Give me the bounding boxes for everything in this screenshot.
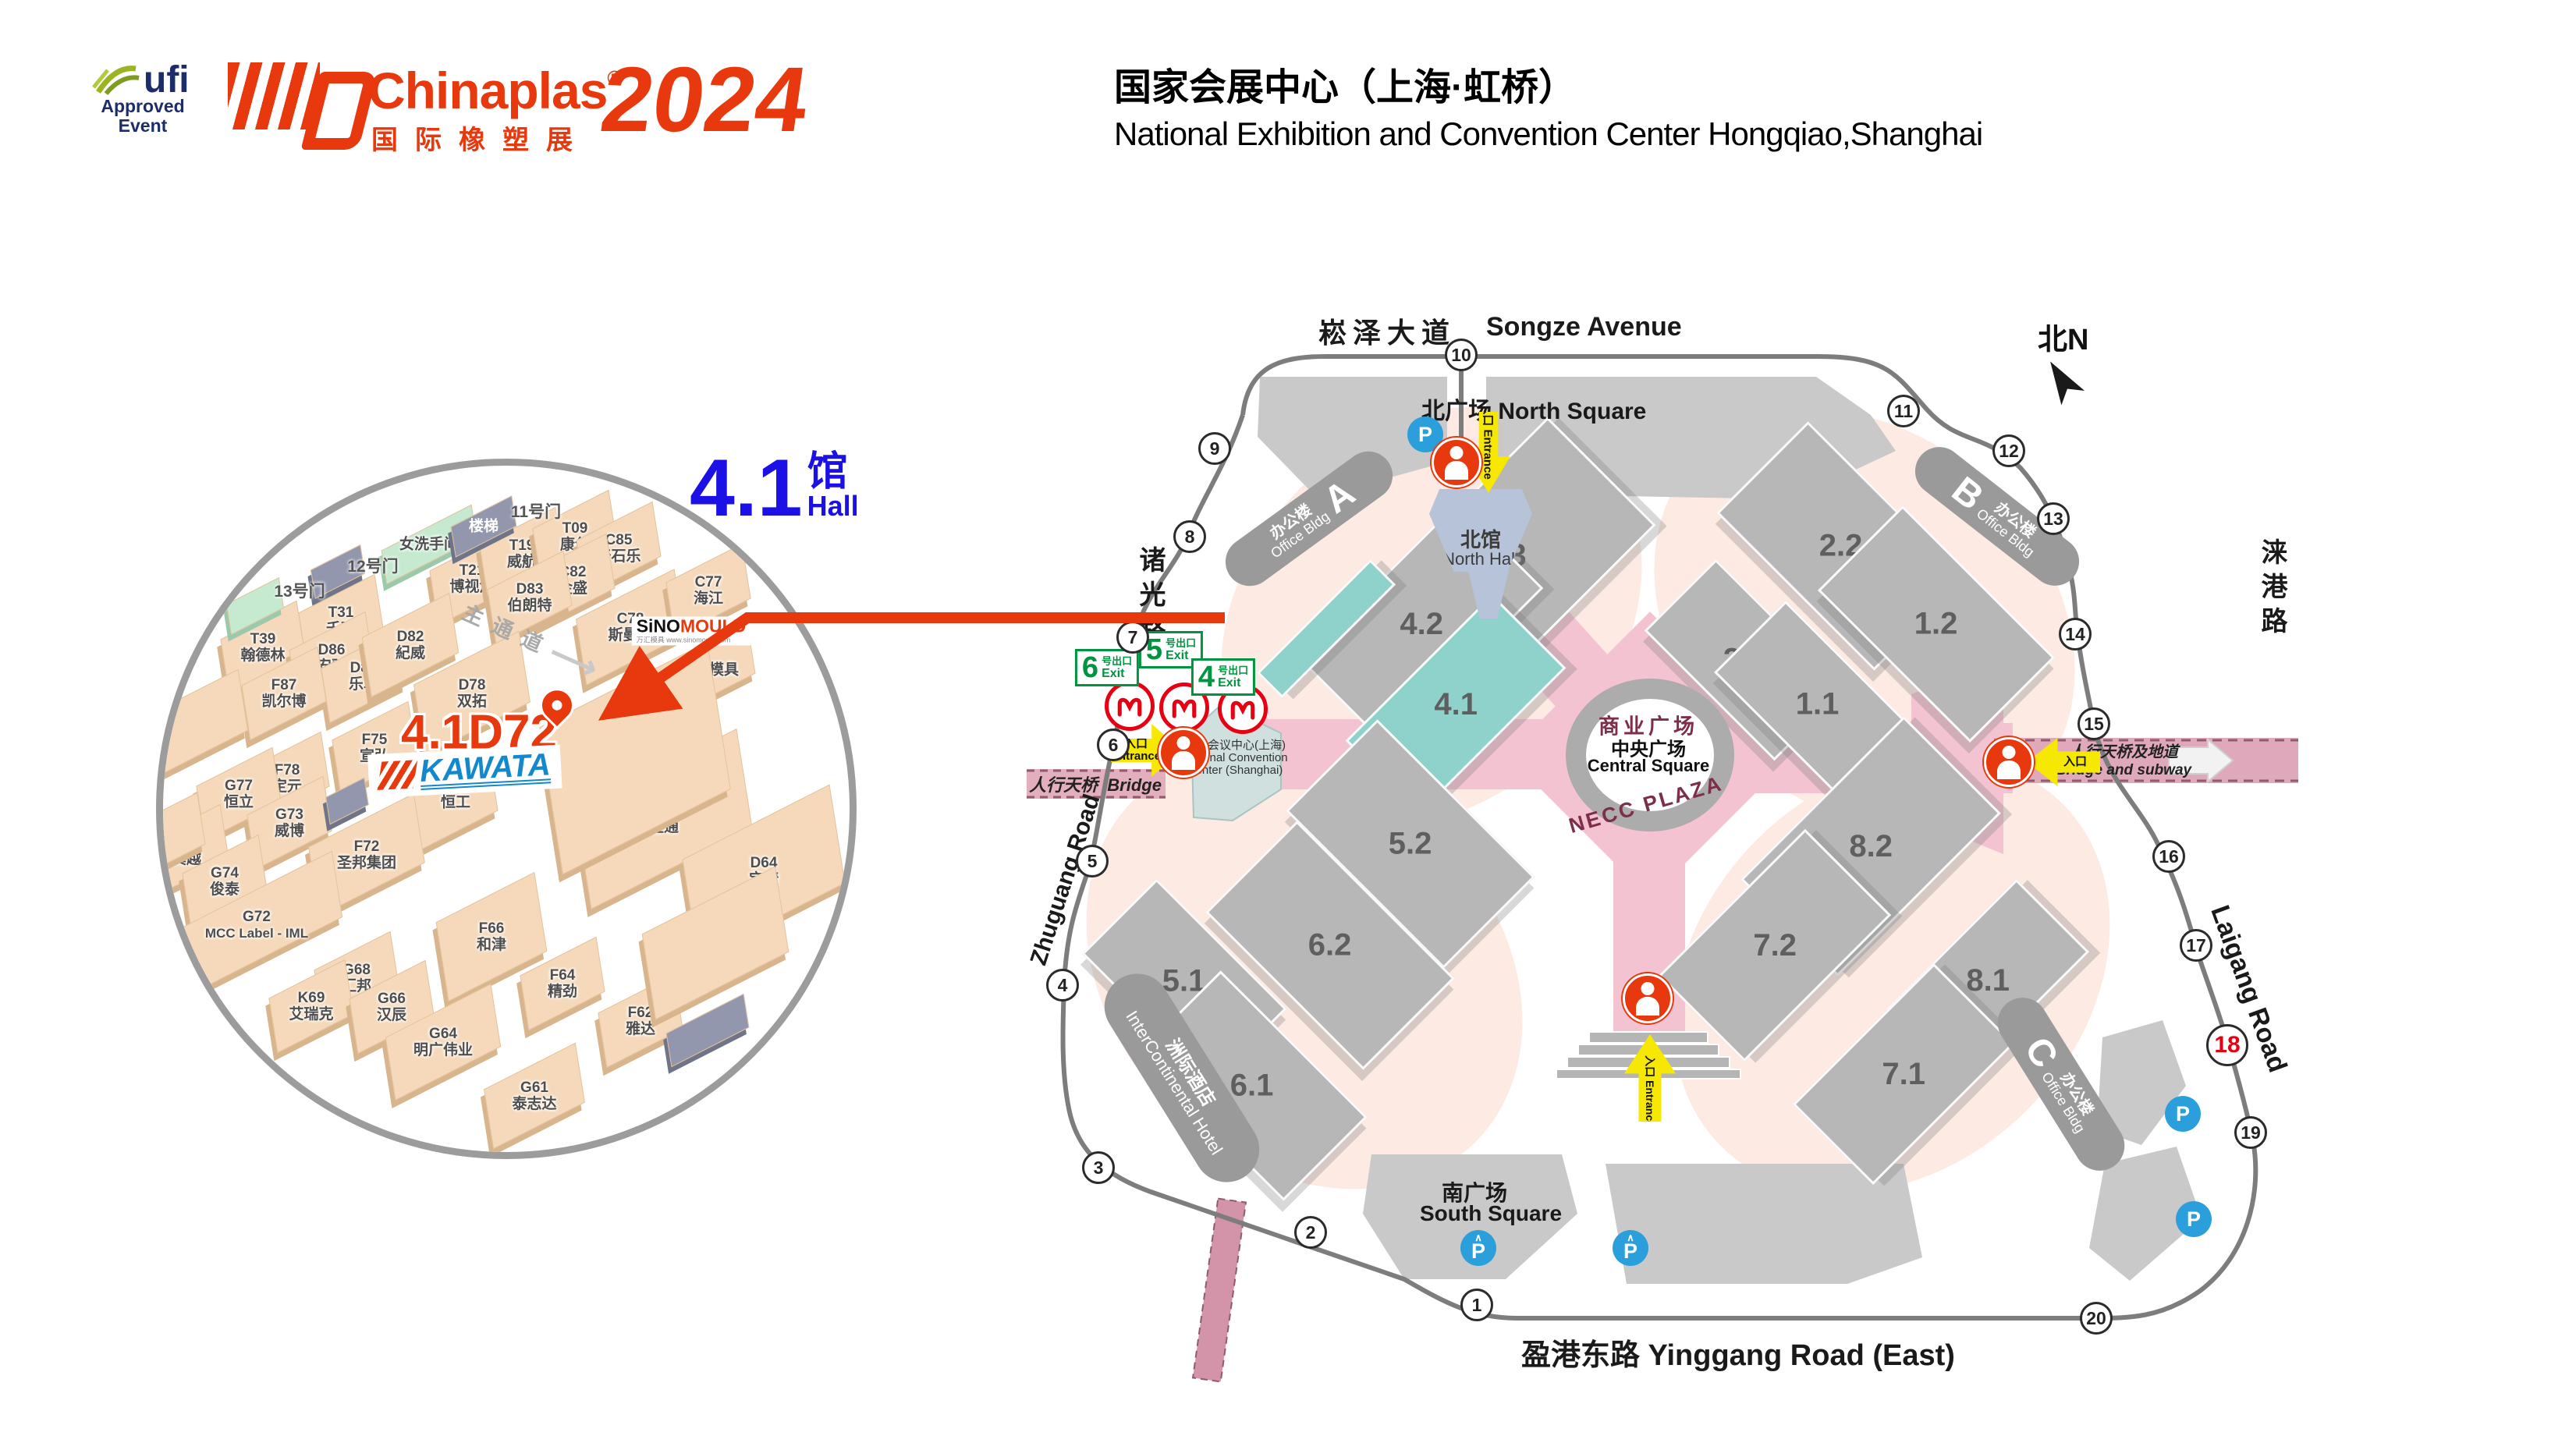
gate-label: 12号门 [347,554,398,577]
booth-label: D82紀威 [396,629,425,661]
ufi-leaf-icon: ufi [84,61,201,97]
west-bridge-label: 人行天桥 Bridge [1029,771,1162,796]
entrance-person-icon [1984,737,2034,787]
road-marker-17: 17 [2180,929,2212,962]
hall-4-1-booth-inset: 主通道⟶ SiNOMOULD 万汇模具 www.sinomould.com 4.… [156,459,857,1159]
booth-label: G77恒立 [224,778,254,810]
booth-label: G66汉辰 [377,991,406,1023]
road-marker-9: 9 [1198,432,1231,465]
booth-label: K69艾瑞克 [289,990,333,1023]
road-marker-12: 12 [1992,434,2025,467]
booth-label: F66和津 [477,920,506,953]
south-square-en: South Square [1420,1201,1562,1226]
gate-label: 11号门 [511,499,561,523]
road-marker-4: 4 [1046,969,1079,1002]
songze-avenue-en: Songze Avenue [1486,312,1682,342]
booth-label: G61泰志达 [512,1080,556,1112]
ufi-approved: Approved [84,97,201,116]
hall-number: 5.2 [1389,826,1432,861]
hall-number: 6.2 [1308,927,1352,963]
ufi-logo: ufi Approved Event [84,61,201,136]
metro-icon [1105,681,1155,731]
road-marker-2: 2 [1294,1216,1327,1249]
chinaplas-stripes-icon [228,62,320,129]
road-marker-6: 6 [1097,729,1130,761]
booth-label: G74俊泰 [210,865,240,898]
south-entrance-label: 入口 Entrance [1642,1055,1658,1127]
road-marker-10: 10 [1445,339,1478,371]
plaza-en-label: Central Square [1588,756,1710,776]
road-marker-3: 3 [1082,1151,1115,1184]
parking-icon: ∧P [1613,1230,1648,1266]
road-marker-13: 13 [2037,502,2070,535]
road-marker-15: 15 [2077,707,2110,740]
exit-sign-6: 6号出口Exit [1075,649,1139,686]
booth-label: F87凯尔博 [261,677,306,710]
booth-block: K69艾瑞克 [268,959,353,1054]
compass-north: 北N [2038,315,2088,405]
venue-title-cn: 国家会展中心（上海·虹桥） [1114,56,1576,111]
hall-number: 6.1 [1230,1068,1274,1103]
road-marker-14: 14 [2059,618,2092,651]
hall-number: 7.2 [1753,928,1797,963]
booth-label: G73威博 [275,807,304,839]
gate-label: 13号门 [274,579,325,602]
hall-number: 1.2 [1914,606,1958,641]
booth-label: F72圣邦集团 [337,838,396,871]
hall-number: 4.2 [1400,607,1443,642]
sinomould-logo: SiNOMOULD 万汇模具 www.sinomould.com [632,617,751,646]
svg-text:ufi: ufi [144,61,190,97]
parking-icon: P [2176,1201,2212,1237]
hall-4-1-callout: 4.1 馆 Hall [690,451,859,526]
east-entrance-label: 入口 [2063,756,2087,768]
ufi-event: Event [84,116,201,136]
road-marker-20: 20 [2080,1302,2113,1335]
road-marker-7: 7 [1116,621,1149,654]
kawata-stripes-icon [378,760,418,790]
parking-icon: ∧P [1460,1230,1496,1266]
road-marker-16: 16 [2152,840,2185,873]
hall-number: 8.1 [1966,963,2010,998]
booth-block: G61泰志达 [484,1043,585,1150]
hall-number: 1.1 [1796,686,1840,721]
laigang-road-cn: 涞港路 [2253,538,2291,641]
booth-label: F64精劲 [548,967,577,1000]
parking-icon: P [2165,1096,2201,1132]
venue-map-page: ufi Approved Event Chinaplas® 国际橡塑展 2024… [0,0,2576,1450]
entrance-person-icon [1158,728,1208,778]
venue-title-en: National Exhibition and Convention Cente… [1114,115,1982,153]
hall-number: 4.1 [1434,687,1478,722]
north-entrance-label: 入口 Entrance [1481,402,1497,479]
entrance-person-icon [1432,438,1481,487]
facility-label: 女洗手间 [399,537,459,553]
booth-label: 恒工 [441,795,470,811]
chinaplas-cn: 国际橡塑展 [371,119,590,157]
hall-number: 7.1 [1882,1057,1925,1092]
booth-label: D83伯朗特 [507,581,552,614]
road-marker-18: 18 [2206,1024,2248,1066]
entrance-person-icon [1623,973,1673,1023]
road-marker-19: 19 [2234,1116,2267,1149]
yinggang-road-label: 盈港东路 Yinggang Road (East) [1521,1331,1955,1374]
road-marker-5: 5 [1076,845,1109,877]
road-marker-8: 8 [1173,520,1206,553]
booth-label: G64明广伟业 [413,1026,473,1058]
booth-label: G72MCC Label - IML [205,909,308,941]
booth-label: C77海江 [694,574,723,607]
hall-number: 8.2 [1849,829,1893,864]
chinaplas-year: 2024 [594,47,814,153]
booth-label: F62雅达 [626,1005,655,1037]
north-square-label: 北广场 North Square [1421,392,1646,426]
songze-avenue-cn: 崧泽大道 [1318,310,1456,351]
road-marker-1: 1 [1460,1289,1493,1321]
exit-sign-4: 4号出口Exit [1191,658,1255,696]
compass-needle-icon [2031,349,2095,414]
road-marker-11: 11 [1887,395,1920,427]
chinaplas-logo: Chinaplas® [368,61,622,120]
facility-label: 楼梯 [469,519,499,535]
booth-label: T39翰德林 [240,631,285,664]
